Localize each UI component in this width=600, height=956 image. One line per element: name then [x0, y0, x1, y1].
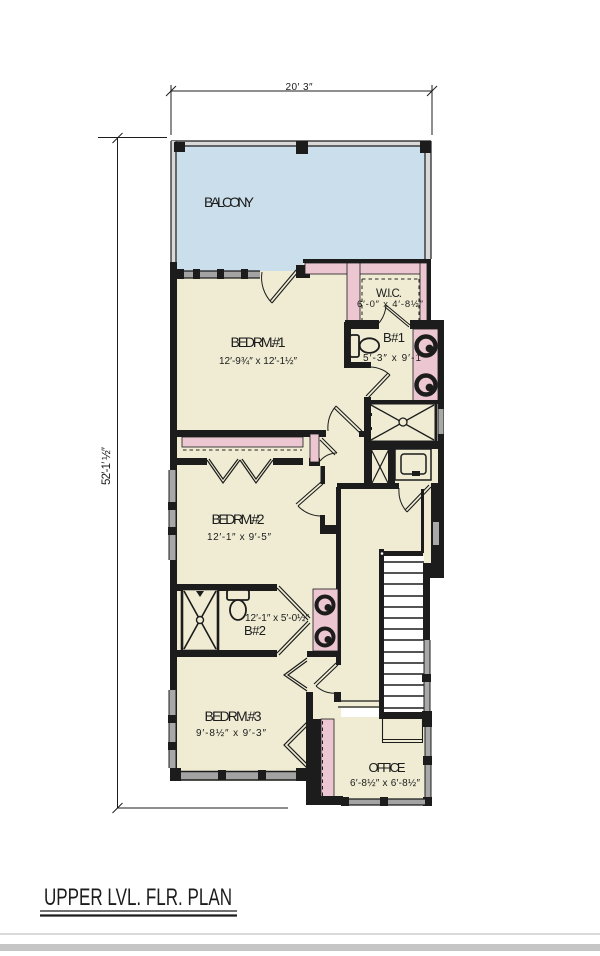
svg-text:52′-1′ ½″: 52′-1′ ½″ — [101, 447, 113, 485]
svg-text:OFFICE: OFFICE — [369, 760, 406, 775]
svg-text:BEDRM.#3: BEDRM.#3 — [205, 708, 262, 724]
svg-text:9′-8½″ x 9′-3″: 9′-8½″ x 9′-3″ — [196, 728, 266, 739]
svg-text:BEDRM.#2: BEDRM.#2 — [212, 511, 265, 527]
svg-text:12′-1″ x 9′-5″: 12′-1″ x 9′-5″ — [207, 532, 271, 543]
svg-text:BEDRM.#1: BEDRM.#1 — [231, 334, 286, 350]
svg-text:12′-9¾″ x 12′-1½″: 12′-9¾″ x 12′-1½″ — [219, 356, 297, 367]
svg-text:20′ 3″: 20′ 3″ — [286, 82, 313, 93]
svg-text:6′-8½″ x 6′-8½″: 6′-8½″ x 6′-8½″ — [350, 778, 420, 789]
svg-text:B#2: B#2 — [244, 623, 266, 638]
svg-text:5′-3″ x 9′-1: 5′-3″ x 9′-1 — [363, 353, 421, 364]
svg-text:UPPER LVL. FLR. PLAN: UPPER LVL. FLR. PLAN — [44, 884, 232, 911]
svg-text:B#1: B#1 — [383, 330, 405, 345]
svg-text:BALCONY: BALCONY — [204, 194, 255, 210]
